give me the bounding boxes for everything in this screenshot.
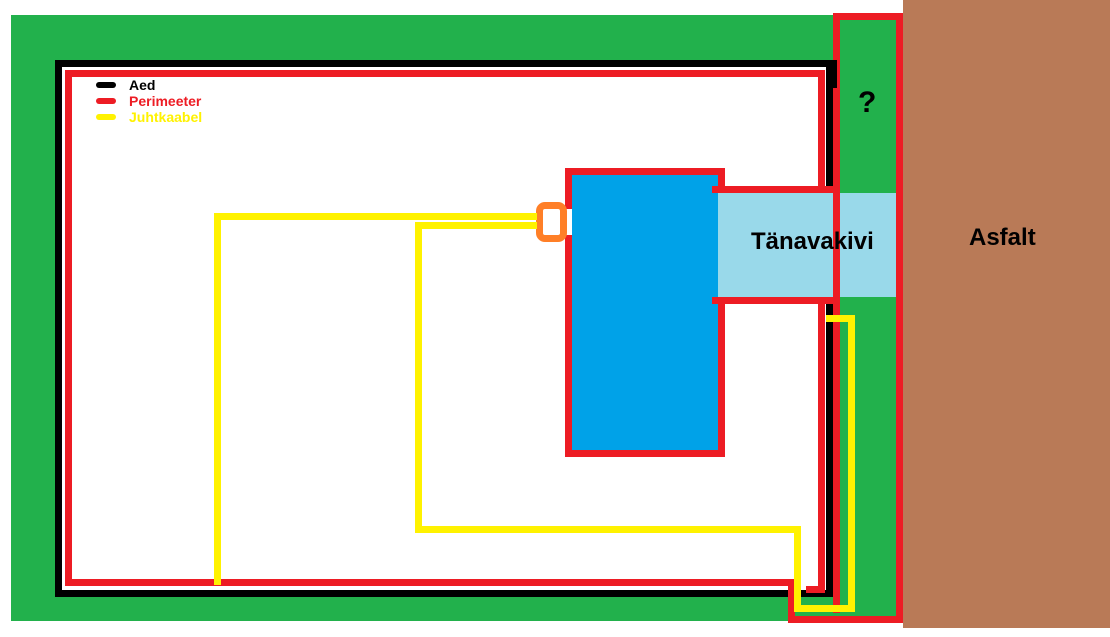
perimeter-wire-right-lower [818, 297, 825, 593]
perimeter-wire-outer-bottom [788, 616, 903, 623]
guide-cable-bottom-link [794, 605, 855, 612]
guide-cable-left-vertical [214, 213, 221, 585]
fence-corner-patch [831, 60, 837, 88]
perimeter-wire-paving-top [712, 186, 840, 193]
perimeter-wire-hook [806, 586, 825, 593]
cable-connector [536, 202, 567, 242]
guide-cable-legend-dash-icon [96, 114, 116, 120]
perimeter-wire-corridor-left [833, 13, 840, 613]
perimeter-wire-left [65, 70, 72, 586]
perimeter-legend-dash-icon [96, 98, 116, 104]
perimeter-wire-outer-right [896, 13, 903, 623]
guide-cable-second-horizontal [418, 222, 537, 229]
unknown-area-label: ? [858, 88, 876, 118]
guide-cable-middle-vertical [415, 222, 422, 533]
guide-cable-lower-horizontal [415, 526, 801, 533]
perimeter-wire-paving-bottom [712, 297, 840, 304]
fence-legend-dash-icon [96, 82, 116, 88]
legend: Aed Perimeeter Juhtkaabel [96, 77, 202, 125]
legend-label-aed: Aed [129, 77, 155, 93]
guide-cable-corridor-vertical [848, 315, 855, 612]
building-area [572, 175, 718, 450]
perimeter-wire-top [65, 70, 825, 77]
asphalt-label: Asfalt [969, 225, 1036, 251]
legend-item-juhtkaabel: Juhtkaabel [96, 109, 202, 125]
perimeter-wire-corridor-top [833, 13, 903, 20]
paint-diagram: Aed Perimeeter Juhtkaabel Tänavakivi Asf… [0, 0, 1110, 637]
legend-item-perimeeter: Perimeeter [96, 93, 202, 109]
perimeter-wire-right-upper [818, 70, 825, 193]
guide-cable-right-drop [794, 526, 801, 612]
guide-cable-corridor-stub [826, 315, 855, 322]
asphalt-area [903, 0, 1110, 628]
paving-label: Tänavakivi [751, 229, 874, 255]
guide-cable-upper-horizontal [215, 213, 537, 220]
legend-label-juhtkaabel: Juhtkaabel [129, 109, 202, 125]
perimeter-wire-bottom [65, 579, 795, 586]
legend-label-perimeeter: Perimeeter [129, 93, 201, 109]
legend-item-aed: Aed [96, 77, 202, 93]
